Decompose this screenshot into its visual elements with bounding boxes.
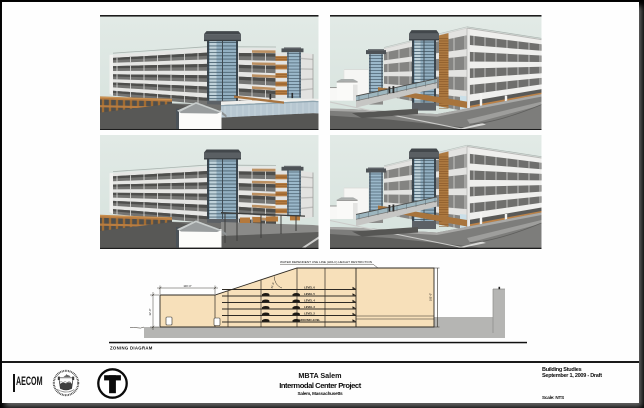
svg-text:ZONING DIAGRAM: ZONING DIAGRAM xyxy=(110,346,153,351)
svg-text:32’-0”: 32’-0” xyxy=(148,308,152,315)
svg-text:GROUND LEVEL: GROUND LEVEL xyxy=(299,318,321,322)
svg-text:105’-0”: 105’-0” xyxy=(429,293,433,301)
svg-text:LEVEL 4: LEVEL 4 xyxy=(304,299,315,303)
svg-text:100’-0”: 100’-0” xyxy=(183,284,191,288)
svg-text:LEVEL 3: LEVEL 3 xyxy=(304,305,315,309)
svg-text:LEVEL 5: LEVEL 5 xyxy=(304,292,315,296)
svg-text:WATER DEPENDENT USE LINE (HDLC: WATER DEPENDENT USE LINE (HDLC) HEIGHT R… xyxy=(280,260,372,264)
svg-text:LEVEL 6: LEVEL 6 xyxy=(304,286,315,290)
svg-text:LEVEL 2: LEVEL 2 xyxy=(304,312,315,316)
